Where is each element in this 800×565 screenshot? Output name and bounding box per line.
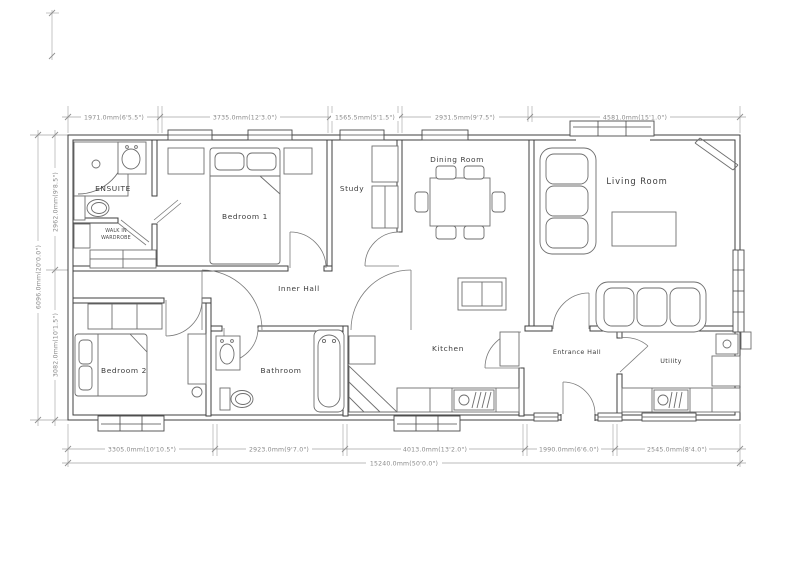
label-dining: Dining Room — [430, 155, 484, 164]
bathtub-icon — [314, 330, 344, 412]
dim-bottom-4: 1990.0mm(6'6.0") — [539, 447, 599, 454]
window-bedroom1-right — [248, 130, 292, 140]
dim-left-bottom: 3082.0mm(10'1.5") — [53, 313, 60, 377]
label-inner-hall: Inner Hall — [278, 284, 320, 293]
study-fixtures — [372, 146, 398, 228]
dim-bottom-total: 15240.0mm(50'0.0") — [370, 461, 438, 468]
label-bedroom1: Bedroom 1 — [222, 212, 268, 221]
window-living-right — [733, 250, 744, 332]
boiler-icon — [716, 334, 738, 354]
wall-bedroom2-bathroom — [206, 303, 211, 416]
window-bedroom1-left — [168, 130, 212, 140]
wall-ensuite-right-upper — [152, 140, 157, 196]
wall-dining-living — [529, 140, 534, 328]
dim-left-top: 2962.0mm(9'8.5") — [53, 172, 60, 232]
floorplan-page: 1971.0mm(6'5.5") 3735.0mm(12'3.0") 1565.… — [0, 0, 800, 565]
wardrobe-icon — [88, 304, 162, 329]
dining-table-icon — [430, 178, 490, 226]
dim-top-1: 1971.0mm(6'5.5") — [84, 115, 144, 122]
wardrobe-shelves-icon — [90, 250, 156, 268]
chair-icon — [436, 226, 456, 239]
bedside-cabinet-icon — [284, 148, 312, 174]
dim-bottom-2: 2923.0mm(9'7.0") — [249, 447, 309, 454]
bay-window-living — [570, 121, 654, 141]
external-meter-box — [741, 332, 751, 349]
kitchen-tall-unit-icon — [349, 336, 375, 364]
coffee-table-icon — [612, 212, 676, 246]
window-entrance-left — [534, 413, 558, 421]
dim-left-total: 6096.0mm(20'0.0") — [36, 245, 43, 309]
window-entrance-right — [598, 413, 622, 421]
chair-icon — [436, 166, 456, 179]
label-wardrobe-line1: WALK IN — [105, 228, 127, 234]
wall-bathroom-top-left — [211, 326, 222, 331]
wall-entrance-utility-stub — [617, 332, 622, 338]
utility-sink-icon — [654, 390, 688, 410]
fridge-icon — [500, 332, 519, 366]
dimension-left: 6096.0mm(20'0.0") 2962.0mm(9'8.5") 3082.… — [30, 130, 72, 426]
wall-innerhall-top-stub — [324, 266, 332, 271]
wall-kitchen-entrance — [519, 368, 524, 416]
dim-bottom-1: 3305.0mm(10'10.5") — [108, 447, 176, 454]
stray-dimension-marks — [46, 10, 59, 60]
dim-top-5: 4581.0mm(15'1.0") — [603, 115, 667, 122]
wall-entrance-utility — [617, 374, 622, 416]
label-entrance: Entrance Hall — [553, 348, 601, 356]
dim-top-3: 1565.5mm(5'1.5") — [335, 115, 395, 122]
chair-icon — [415, 192, 428, 212]
window-utility — [642, 413, 696, 421]
wall-bedroom1-study — [327, 140, 332, 266]
dim-bottom-5: 2545.0mm(8'4.0") — [647, 447, 707, 454]
window-dining — [422, 130, 468, 140]
sofa-icon — [596, 282, 706, 332]
label-kitchen: Kitchen — [432, 344, 464, 353]
label-study: Study — [340, 184, 364, 193]
double-bed-icon — [210, 148, 280, 264]
chair-icon — [492, 192, 505, 212]
chair-icon — [464, 166, 484, 179]
basin-icon — [216, 336, 240, 370]
bed-icon — [75, 334, 147, 396]
label-utility: Utility — [660, 357, 682, 365]
window-study — [340, 130, 384, 140]
basin-icon — [118, 142, 146, 174]
label-bedroom2: Bedroom 2 — [101, 366, 147, 375]
wall-living-bottom-left — [525, 326, 552, 331]
bay-window-kitchen — [394, 416, 460, 431]
desk-icon — [372, 146, 398, 182]
label-wardrobe-line2: WARDROBE — [101, 235, 131, 241]
chair-icon — [464, 226, 484, 239]
bay-window-bedroom2 — [98, 416, 164, 431]
sideboard-icon — [458, 278, 506, 310]
cupboard-icon — [74, 224, 90, 248]
utility-tall-unit-icon — [712, 356, 740, 386]
label-bathroom: Bathroom — [260, 366, 301, 375]
kitchen-sink-icon — [454, 390, 494, 410]
wall-bedroom2-top — [73, 298, 164, 303]
dim-top-4: 2931.5mm(9'7.5") — [435, 115, 495, 122]
dim-bottom-3: 4013.0mm(13'2.0") — [403, 447, 467, 454]
floor-plan-canvas: 1971.0mm(6'5.5") 3735.0mm(12'3.0") 1565.… — [0, 0, 800, 565]
label-ensuite: ENSUITE — [95, 184, 131, 193]
bedside-cabinet-icon — [168, 148, 204, 174]
label-living: Living Room — [606, 176, 667, 186]
sofa-icon — [540, 148, 596, 254]
wall-bedroom2-top-stub — [202, 298, 211, 303]
dim-top-2: 3735.0mm(12'3.0") — [213, 115, 277, 122]
